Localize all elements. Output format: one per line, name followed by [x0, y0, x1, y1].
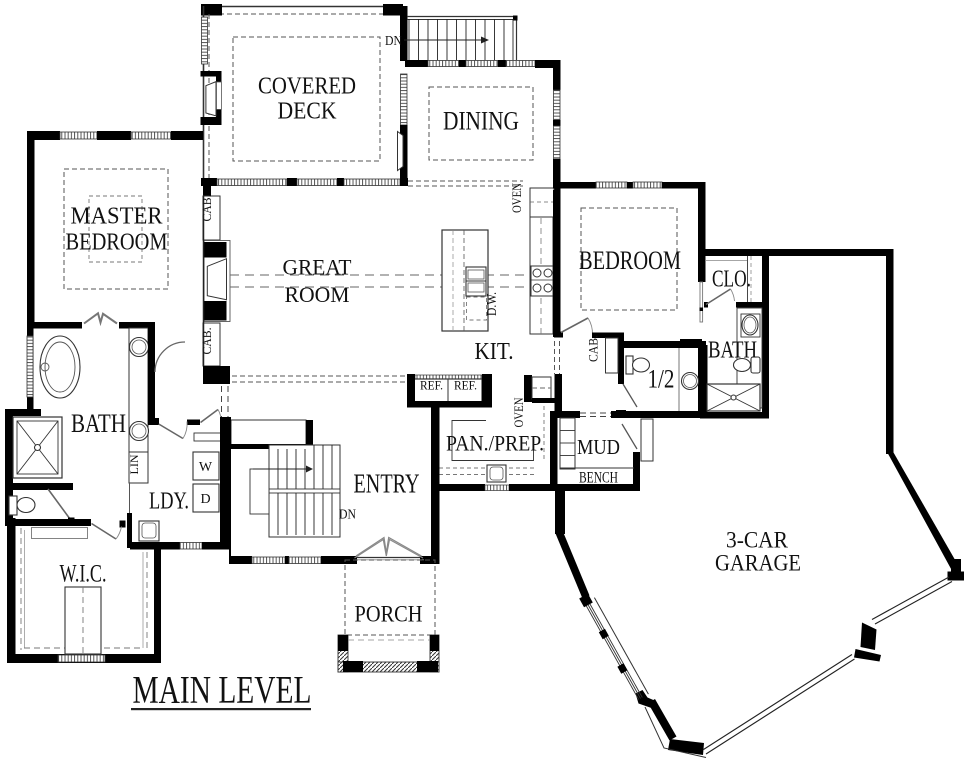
svg-text:BENCH: BENCH [579, 470, 618, 487]
svg-text:D: D [200, 492, 210, 507]
svg-text:W: W [199, 460, 213, 475]
svg-text:GARAGE: GARAGE [715, 551, 801, 577]
svg-text:BEDROOM: BEDROOM [579, 246, 681, 275]
svg-text:DN: DN [385, 34, 402, 49]
svg-text:W.I.C.: W.I.C. [60, 561, 107, 588]
svg-text:MUD: MUD [577, 435, 620, 459]
svg-text:KIT.: KIT. [475, 339, 514, 365]
svg-text:LIN: LIN [127, 454, 141, 474]
svg-text:PAN./PREP.: PAN./PREP. [446, 431, 544, 456]
svg-text:PORCH: PORCH [355, 602, 423, 628]
svg-text:MAIN LEVEL: MAIN LEVEL [133, 669, 312, 712]
svg-text:DN: DN [339, 508, 356, 523]
svg-text:OVEN: OVEN [511, 397, 526, 428]
svg-text:CLO.: CLO. [712, 267, 751, 293]
svg-text:MASTER: MASTER [71, 204, 163, 230]
svg-text:LDY.: LDY. [149, 488, 189, 515]
svg-text:REF.: REF. [454, 379, 477, 393]
svg-text:1/2: 1/2 [648, 365, 675, 394]
svg-text:DECK: DECK [278, 99, 338, 125]
svg-text:BATH: BATH [708, 338, 757, 364]
svg-text:REF.: REF. [420, 379, 443, 393]
svg-text:D.W.: D.W. [485, 292, 500, 316]
svg-text:BEDROOM: BEDROOM [66, 230, 168, 256]
svg-text:CAB.: CAB. [199, 328, 214, 355]
svg-text:DINING: DINING [443, 107, 519, 136]
svg-text:GREAT: GREAT [283, 255, 353, 280]
svg-text:ROOM: ROOM [285, 282, 350, 307]
svg-text:CAB.: CAB. [586, 335, 601, 362]
svg-text:ENTRY: ENTRY [354, 469, 420, 499]
svg-text:OVEN: OVEN [509, 182, 524, 213]
svg-text:CAB.: CAB. [199, 195, 214, 222]
svg-text:BATH: BATH [71, 409, 126, 438]
svg-text:COVERED: COVERED [258, 74, 356, 100]
